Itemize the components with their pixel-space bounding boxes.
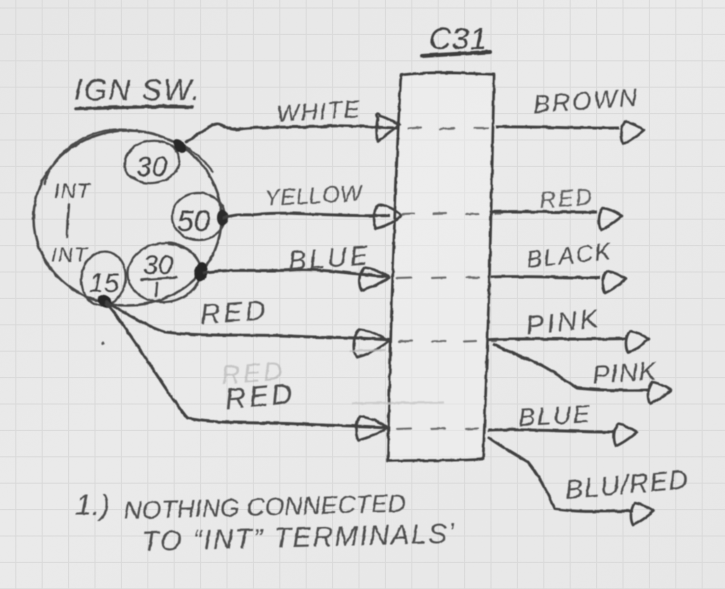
svg-text:WHITE: WHITE bbox=[276, 96, 362, 128]
svg-text:IGN SW.: IGN SW. bbox=[74, 74, 202, 107]
svg-text:BLUE: BLUE bbox=[287, 240, 371, 276]
svg-text:PINK: PINK bbox=[591, 356, 658, 390]
svg-text:30: 30 bbox=[143, 250, 173, 280]
svg-text:RED: RED bbox=[539, 183, 595, 213]
svg-text:INT: INT bbox=[51, 244, 89, 267]
svg-text:30: 30 bbox=[136, 151, 168, 182]
svg-text:YELLOW: YELLOW bbox=[264, 180, 365, 211]
svg-text:RED: RED bbox=[199, 294, 269, 330]
svg-text:RED: RED bbox=[224, 378, 297, 416]
svg-text:15: 15 bbox=[89, 268, 120, 298]
svg-text:INT: INT bbox=[54, 180, 92, 203]
svg-text:BLUE: BLUE bbox=[518, 400, 593, 432]
svg-text:1.): 1.) bbox=[75, 489, 110, 522]
svg-text:50: 50 bbox=[177, 205, 211, 238]
